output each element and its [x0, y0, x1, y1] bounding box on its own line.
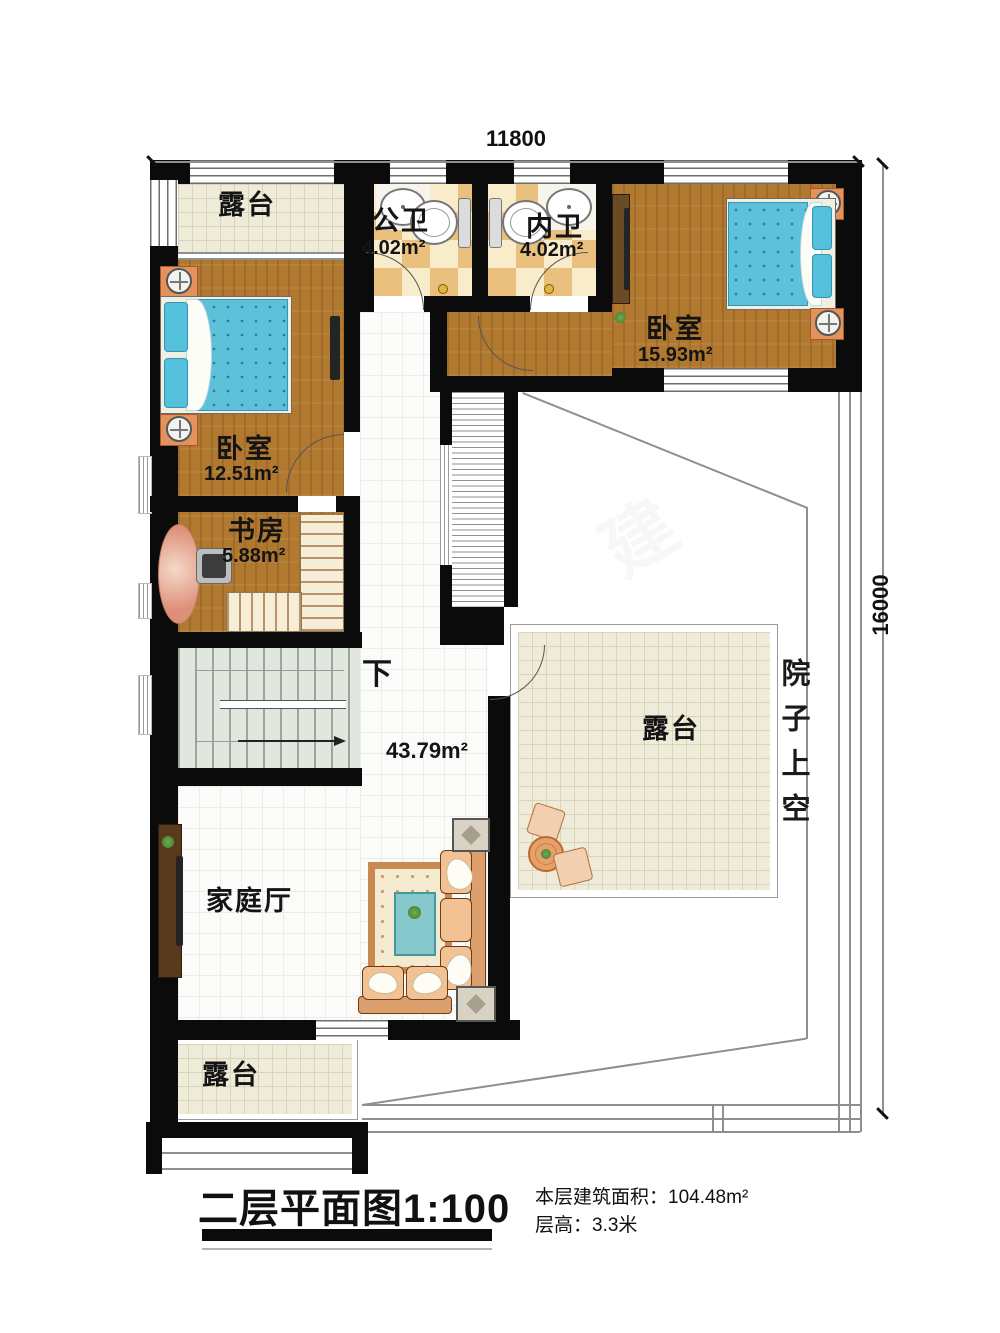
pillow [812, 254, 832, 298]
dimension-line-top [152, 161, 860, 163]
sofa-back [470, 846, 486, 996]
shaft-window [440, 445, 452, 565]
page-title: 二层平面图1:100 [198, 1176, 510, 1234]
wall [788, 368, 836, 392]
wall [150, 496, 298, 512]
window [150, 180, 178, 246]
dimension-line-right [882, 164, 884, 1116]
inner-bath-label: 内卫 [526, 214, 584, 241]
table-deco [408, 906, 421, 919]
parapet-divider [712, 1104, 714, 1132]
wall [424, 296, 530, 312]
sofa-seat [440, 898, 472, 942]
porch-post [352, 1122, 368, 1174]
slider-track [178, 258, 344, 260]
window [514, 160, 570, 184]
bedroom-right-label: 卧室 [646, 316, 704, 343]
bed-mattress [728, 202, 808, 306]
stairs-down-label: 下 [362, 660, 394, 690]
porch-post [146, 1122, 162, 1174]
courtyard-bottom-line [362, 1118, 860, 1120]
study-area: 5.88m² [222, 546, 285, 566]
stairwell-void-hatch [452, 392, 504, 607]
parapet-divider [722, 1104, 724, 1132]
title-underline-bar [202, 1229, 492, 1241]
wall [612, 368, 664, 392]
wall [430, 312, 447, 392]
floor-height-text: 层高：3.3米 [535, 1210, 637, 1237]
stair-arrow-head [334, 736, 346, 746]
study-label: 书房 [228, 518, 286, 545]
pillow [812, 206, 832, 250]
plant-icon [162, 836, 174, 848]
floor-plan: 柏 建 柏 [0, 0, 1000, 1333]
tv-icon [624, 208, 630, 290]
wall [150, 1020, 316, 1040]
window [664, 368, 788, 392]
porch-line [162, 1152, 352, 1154]
courtyard-roof-edge-line2 [362, 1038, 806, 1106]
table-deco [541, 849, 551, 859]
window-sill [138, 675, 152, 735]
family-room-label: 家庭厅 [206, 888, 293, 915]
title-underline-thin [202, 1248, 492, 1250]
window-sill [138, 583, 152, 619]
floor-drain [438, 284, 448, 294]
coffee-table [394, 892, 436, 956]
slider-track [178, 252, 344, 254]
wall [440, 607, 504, 645]
courtyard-parapet-line [838, 392, 840, 1132]
hall-area: 43.79m² [386, 740, 468, 762]
wall [440, 565, 452, 607]
plant-icon [615, 312, 626, 323]
bedroom-left-area: 12.51m² [204, 464, 279, 484]
closet [226, 592, 302, 632]
courtyard-roof-edge-line [522, 392, 807, 508]
public-bath-area: 4.02m² [362, 238, 425, 258]
wall [596, 160, 612, 312]
window [316, 1020, 388, 1040]
lamp-icon [166, 416, 192, 442]
wall [336, 496, 360, 512]
toilet-icon [458, 198, 471, 248]
courtyard-label: 院子上空 [778, 658, 807, 838]
courtyard-bottom-line [362, 1104, 860, 1106]
wall [440, 392, 452, 445]
wall [344, 496, 360, 648]
tv-icon [176, 856, 183, 946]
courtyard-bottom-line [362, 1131, 860, 1133]
pillow [164, 302, 188, 352]
porch-beam [146, 1122, 368, 1138]
bedroom-right-area: 15.93m² [638, 345, 713, 365]
wall [388, 1020, 520, 1040]
bedroom-left-label: 卧室 [216, 436, 274, 463]
lamp-icon [166, 268, 192, 294]
wall [447, 376, 612, 392]
terrace-mid-label: 露台 [642, 716, 700, 743]
window [664, 160, 788, 184]
wall [472, 160, 488, 312]
terrace-top-label: 露台 [218, 192, 276, 219]
terrace-bottom-label: 露台 [202, 1062, 260, 1089]
tv-icon [330, 316, 340, 380]
rug [158, 524, 200, 624]
inner-bath-area: 4.02m² [520, 240, 583, 260]
wall [344, 312, 360, 432]
side-table [452, 818, 490, 852]
wall [570, 160, 664, 184]
dimension-right: 16000 [868, 570, 894, 640]
dimension-top: 11800 [486, 126, 546, 152]
courtyard-parapet-line [849, 392, 851, 1132]
building-area-text: 本层建筑面积：104.48m² [535, 1182, 748, 1209]
courtyard-parapet-line [860, 392, 862, 1132]
porch-line [162, 1168, 352, 1170]
wall [150, 632, 362, 648]
stair-arrow [238, 740, 336, 742]
wall [504, 392, 518, 607]
toilet-icon [489, 198, 502, 248]
wall [150, 768, 362, 786]
pillow [164, 358, 188, 408]
wall [588, 296, 596, 312]
side-table [456, 986, 496, 1022]
window [390, 160, 446, 184]
watermark-glyph: 建 [578, 469, 695, 596]
wardrobe [300, 514, 344, 632]
lamp-icon [815, 310, 841, 336]
public-bath-label: 公卫 [372, 208, 430, 235]
floor-drain [544, 284, 554, 294]
stair-rail [220, 700, 346, 709]
window [190, 160, 334, 184]
